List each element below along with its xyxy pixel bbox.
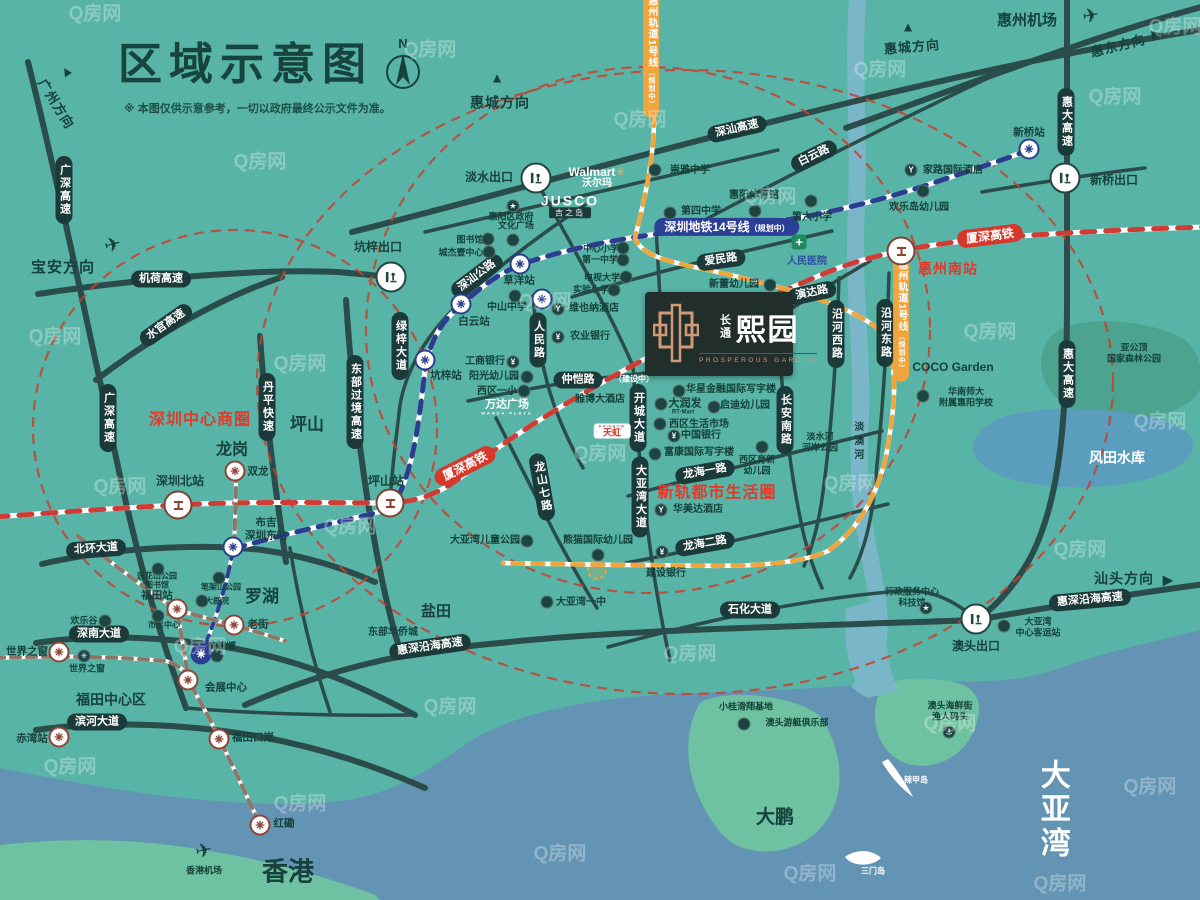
poi-label: 华南师大 附属惠阳学校	[939, 386, 993, 407]
road-label: 深汕高速	[706, 114, 768, 144]
metro-station-icon	[225, 461, 246, 482]
poi-icon	[756, 441, 769, 454]
road-label: 北环大道	[65, 538, 126, 559]
direction-arrow-icon: ▲	[901, 19, 915, 36]
poi-label: 文化广场	[498, 221, 534, 232]
highway-exit-label: 新桥出口	[1090, 173, 1138, 187]
district-label: 福田中心区	[76, 692, 146, 709]
metro-station-icon	[250, 815, 271, 836]
rail-transit-line-badge: 惠州轨道1号线（规划中）	[643, 0, 659, 117]
highway-exit-label: 坑梓出口	[354, 240, 402, 254]
metro-station-icon	[224, 615, 245, 636]
road-label: 龙山七路	[528, 452, 557, 522]
railway-station-icon	[376, 489, 405, 518]
poi-icon	[541, 596, 554, 609]
poi-label: 大亚湾儿童公园	[450, 535, 520, 547]
rainbow-store-badge: RAINBOW天虹	[594, 424, 631, 439]
poi-icon	[620, 271, 633, 284]
road-label: 滨河大道	[67, 714, 127, 731]
poi-icon	[738, 718, 751, 731]
poi-icon: ¥	[668, 430, 681, 443]
highway-exit-label: 澳头出口	[952, 639, 1000, 653]
road-label: 沿河东路	[877, 299, 894, 367]
metro-station-icon	[178, 670, 199, 691]
poi-icon: Y	[552, 303, 565, 316]
poi-icon	[211, 650, 224, 663]
highlight-label: 深圳中心商圈	[149, 412, 251, 431]
road-label: 石化大道	[720, 602, 780, 619]
road-label: 长安南路	[777, 386, 794, 454]
poi-label: 华星金融国际写字楼	[686, 384, 776, 396]
metro-station-label: 福田口岸	[232, 732, 274, 745]
district-label: 香港	[262, 857, 314, 888]
metro-line-badge: 深圳地铁14号线（规划中）	[654, 218, 799, 236]
poi-label: 阳光幼儿园	[469, 371, 519, 383]
district-label: 大鹏	[756, 807, 794, 829]
poi-icon	[749, 205, 762, 218]
poi-icon	[917, 185, 930, 198]
poi-label: 熊猫国际幼儿园	[563, 535, 633, 547]
poi-icon: Y	[905, 164, 918, 177]
poi-icon	[673, 385, 686, 398]
hospital-icon: +	[792, 235, 807, 250]
metro-station-label: 布吉 深圳东站	[245, 516, 287, 541]
poi-icon	[805, 195, 818, 208]
poi-icon	[592, 549, 605, 562]
poi-label: 农业银行	[570, 331, 610, 343]
poi-icon	[708, 401, 721, 414]
highway-exit-icon	[1050, 163, 1081, 194]
poi-label: 香港机场	[186, 866, 222, 877]
road-label: 惠深沿海高速	[1048, 588, 1131, 612]
poi-icon	[99, 615, 112, 628]
poi-label: 西区一小	[477, 386, 517, 398]
railway-station-icon	[164, 491, 193, 520]
metro-station-icon	[209, 729, 230, 750]
highway-exit-label: 淡水出口	[465, 170, 513, 184]
metro-station-icon	[451, 294, 472, 315]
poi-label: 西区育新 幼儿园	[739, 454, 775, 475]
metro-station-icon	[510, 254, 531, 275]
hsr-line-badge: 厦深高铁	[431, 443, 498, 489]
poi-label: 欢乐岛幼儿园	[889, 202, 949, 214]
poi-icon: ✳	[78, 650, 91, 663]
road-label: 广深高速	[56, 156, 73, 224]
poi-icon	[521, 371, 534, 384]
poi-label: 大亚湾 中心客运站	[1015, 616, 1060, 637]
metro-station-label: 新桥站	[1013, 127, 1045, 140]
wanda-plaza-label: 万达广场	[485, 399, 529, 412]
poi-label: 第六小学	[792, 212, 832, 224]
poi-icon: ★	[507, 200, 520, 213]
poi-icon	[482, 233, 495, 246]
road-label: 东部过境高速	[347, 355, 364, 449]
district-label: 东部华侨城	[368, 627, 418, 639]
direction-arrow-icon: ▲	[56, 60, 77, 81]
poi-label: 城杰壹中心	[438, 248, 483, 259]
direction-label: 惠东方向	[1089, 32, 1147, 60]
metro-station-label: 赤湾站	[16, 733, 48, 746]
poi-label: 小桂滑翔基地	[719, 702, 773, 713]
road-label: 沿河西路	[828, 300, 845, 368]
district-label: 淡澳河	[851, 421, 863, 463]
highway-exit-icon	[376, 262, 407, 293]
metro-station-label: 福田站	[141, 590, 173, 603]
poi-label: 惠阳体育馆	[729, 190, 779, 202]
airplane-icon: ✈	[1081, 4, 1102, 30]
walmart-logo: Walmart✳	[569, 165, 626, 179]
poi-icon: ¥	[656, 546, 669, 559]
road-label: 开城大道	[630, 384, 647, 452]
poi-icon	[152, 563, 165, 576]
direction-label: 惠城方向	[883, 37, 940, 57]
road-label: 惠大高速	[1058, 88, 1075, 156]
metro-station-icon	[191, 644, 212, 665]
highway-exit-icon	[521, 163, 552, 194]
poi-icon: ★	[920, 602, 933, 615]
direction-arrow-icon: ▲	[490, 70, 504, 87]
poi-label: 实验小学	[573, 285, 609, 296]
road-label: 水官高速	[137, 301, 196, 349]
hospital-label: 人民医院	[787, 256, 827, 268]
poi-icon	[507, 234, 520, 247]
hsr-line-badge: 厦深高铁	[956, 223, 1024, 249]
metro-station-label: 世界之窗	[6, 646, 48, 659]
metro-station-icon	[532, 289, 553, 310]
poi-label: 家路国际酒店	[923, 165, 983, 177]
jusco-cn-label: 吉之岛	[549, 207, 591, 218]
poi-label: 工商银行	[465, 356, 505, 368]
water-area-label: 风田水库	[1089, 450, 1145, 467]
highway-exit-icon	[961, 604, 992, 635]
road-label: 丹平快速	[259, 373, 276, 441]
direction-label: 惠城方向	[470, 95, 530, 112]
poi-icon	[518, 385, 531, 398]
railway-station-label: 深圳北站	[156, 474, 204, 488]
direction-label: 宝安方向	[31, 259, 95, 277]
poi-label: 中心小学	[583, 244, 619, 255]
road-label: 龙海一路	[674, 458, 736, 485]
road-label: 人民路	[530, 313, 547, 368]
walmart-cn-label: 沃尔玛	[582, 178, 612, 190]
metro-station-label: 万象城	[212, 641, 236, 651]
project-name: 熙园	[736, 305, 800, 349]
poi-icon	[521, 535, 534, 548]
poi-icon	[483, 246, 496, 259]
metro-station-label: 草洋站	[503, 275, 535, 288]
poi-icon	[617, 254, 630, 267]
poi-label: 欢乐谷	[70, 616, 97, 627]
railway-station-label: 坪山站	[368, 474, 404, 488]
poi-label: 澳头海鲜街 渔人码头	[927, 700, 972, 721]
railway-station-icon	[887, 237, 916, 266]
poi-label: RT-Mart	[672, 409, 694, 416]
district-label: 罗湖	[245, 587, 279, 607]
road-label: 大亚湾大道	[632, 457, 649, 538]
poi-icon	[152, 610, 165, 623]
poi-label: 新蕾幼儿园	[709, 279, 759, 291]
metro-station-icon	[1019, 139, 1040, 160]
poi-label: 雅博大酒店	[575, 394, 625, 406]
direction-arrow-icon: ▶	[1150, 25, 1163, 43]
highlight-label: 新轨都市生活圈	[657, 485, 776, 504]
project-logo-card: 长通 熙园 PROSPEROUS GARDEN	[645, 292, 793, 376]
poi-icon	[509, 290, 522, 303]
poi-icon: Y	[655, 504, 668, 517]
metro-station-icon	[49, 642, 70, 663]
water-area-label: 大亚湾	[1034, 759, 1069, 861]
labels-layer: 广深高速机荷高速水官高速广深高速丹平快速东部过境高速绿梓大道深汕公路深汕高速白云…	[0, 0, 1200, 900]
road-label: 深南大道	[69, 626, 129, 643]
metro-station-icon	[415, 350, 436, 371]
poi-icon	[998, 620, 1011, 633]
poi-label: 崇雅中学	[670, 165, 710, 177]
poi-label: 中国银行	[681, 430, 721, 442]
poi-label: 维也纳酒店	[569, 303, 619, 315]
district-label: 坪山	[290, 415, 324, 435]
poi-icon: ¥	[507, 356, 520, 369]
poi-label: 第四中学	[681, 206, 721, 218]
poi-label: 世界之窗	[69, 664, 105, 675]
poi-label: 建设银行	[646, 568, 686, 580]
poi-icon: ¥	[552, 331, 565, 344]
highlight-label: 惠州南站	[918, 261, 978, 278]
metro-station-label: 会展中心	[205, 682, 247, 695]
poi-icon	[917, 390, 930, 403]
road-label: 仲恺路	[554, 372, 603, 389]
road-label: 龙海二路	[674, 530, 736, 557]
district-label: 龙岗	[216, 442, 248, 461]
poi-label: 大亚湾一中	[556, 597, 606, 609]
poi-icon	[213, 572, 226, 585]
poi-label: 市民中心	[148, 620, 180, 629]
poi-icon	[654, 418, 667, 431]
direction-label: 广州方向	[35, 76, 78, 132]
poi-label: 澳头游艇俱乐部	[765, 718, 828, 729]
road-label: 惠大高速	[1059, 340, 1076, 408]
poi-icon	[608, 284, 621, 297]
poi-label: 华美达酒店	[673, 504, 723, 516]
poi-icon: ⚓	[943, 726, 956, 739]
district-label: 盐田	[421, 603, 451, 621]
project-logo-icon	[653, 303, 699, 365]
airplane-icon: ✈	[102, 232, 124, 259]
water-area-label: 辣甲岛	[904, 775, 928, 784]
road-label: 白云路	[788, 138, 839, 175]
wanda-plaza-sub: WANDA PLAZA	[481, 412, 532, 417]
poi-icon	[655, 398, 668, 411]
airplane-icon: ✈	[193, 839, 214, 866]
poi-label: 启迪幼儿园	[720, 400, 770, 412]
water-area-label: 三门岛	[861, 866, 885, 875]
poi-label: 图书馆	[456, 235, 483, 246]
poi-icon	[664, 207, 677, 220]
poi-label: 电视大学	[584, 273, 620, 284]
coco-garden-label: COCO Garden	[912, 360, 993, 374]
direction-arrow-icon: ▶	[1163, 572, 1174, 589]
poi-label: 第一中学	[582, 255, 618, 266]
direction-label: 汕头方向	[1094, 571, 1154, 588]
poi-label: 大剧院	[205, 596, 229, 605]
road-label: 绿梓大道	[392, 312, 409, 380]
metro-station-icon	[223, 537, 244, 558]
poi-icon	[196, 595, 209, 608]
project-name-en: PROSPEROUS GARDEN	[699, 353, 817, 364]
road-label: 爱民路	[696, 248, 747, 272]
district-label: 惠州机场	[997, 12, 1057, 30]
rail-transit-line-badge: 惠州轨道1号线（规划中）	[893, 251, 909, 382]
project-name-prefix: 长通	[717, 314, 733, 340]
metro-station-label: 白云站	[458, 316, 490, 329]
poi-label: 中山中学	[487, 302, 527, 314]
poi-label: 亚公顶 国家森林公园	[1107, 342, 1161, 363]
metro-station-icon	[49, 727, 70, 748]
metro-station-label: 双龙	[248, 466, 269, 479]
poi-label: 淡水河 河岸公园	[802, 431, 838, 452]
metro-station-label: 坑梓站	[430, 370, 462, 383]
metro-station-label: 老街	[248, 619, 269, 632]
road-label: 机荷高速	[131, 271, 191, 288]
poi-label: 富康国际写字楼	[664, 447, 734, 459]
poi-icon	[649, 448, 662, 461]
road-label: 广深高速	[100, 384, 117, 452]
poi-icon	[764, 279, 777, 292]
poi-icon	[649, 164, 662, 177]
region-map: 区域示意图 ※ 本图仅供示意参考，一切以政府最终公示文件为准。 N 长通 熙园 …	[0, 0, 1200, 900]
metro-station-label: 红磡	[274, 818, 295, 831]
